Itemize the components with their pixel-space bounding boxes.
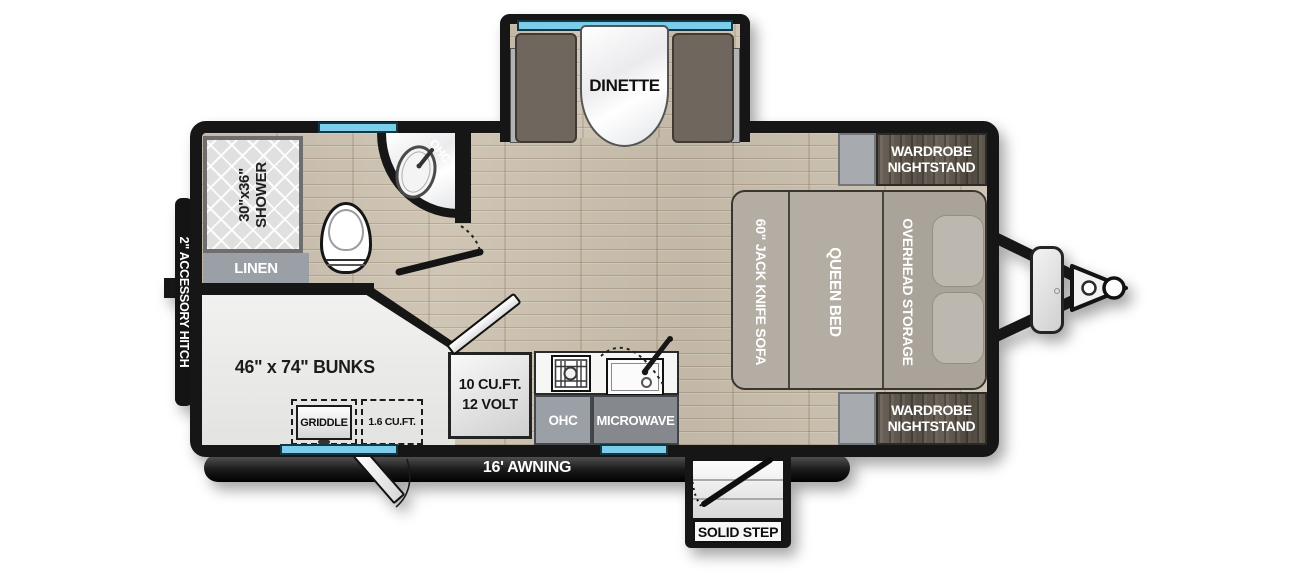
floor-plan: 2" ACCESSORY HITCH 16' AWNING 30"x36" SH… [0,0,1300,581]
bathroom-door-swing-arc [461,226,480,251]
trailer: 2" ACCESSORY HITCH 16' AWNING 30"x36" SH… [0,0,1300,581]
sink-faucet-head [642,369,648,375]
detail-overlay [0,0,1300,581]
entry-door [704,460,770,504]
sink-faucet-icon [645,341,668,371]
sink-cover-swing-arc [601,348,664,386]
entry-door-swing-arc [692,476,701,506]
vanity-faucet-head [417,164,422,169]
vanity-faucet-icon [420,150,432,165]
baggage-door-swing-arc [396,459,410,507]
bathroom-door [399,252,480,272]
stove-burner-icon [556,360,587,387]
